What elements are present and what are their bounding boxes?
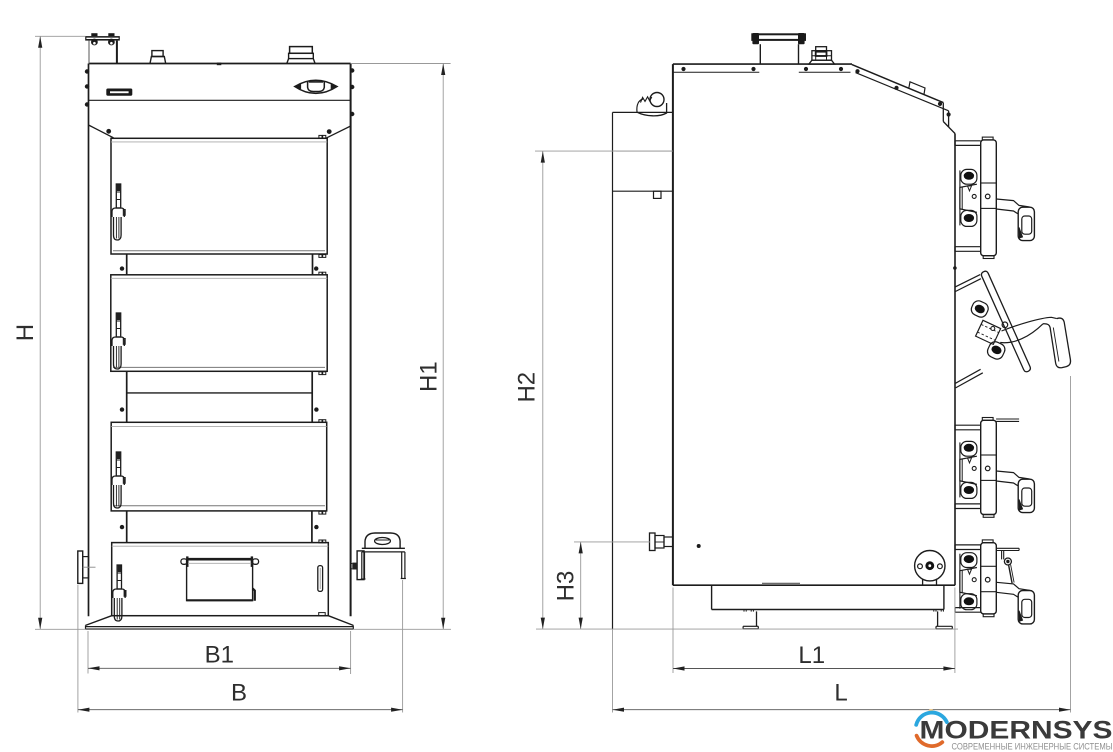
svg-text:B1: B1 <box>205 641 234 668</box>
svg-text:L1: L1 <box>798 642 825 669</box>
svg-text:H1: H1 <box>416 361 443 392</box>
svg-text:L: L <box>834 680 847 707</box>
svg-text:H3: H3 <box>553 571 580 602</box>
svg-text:H: H <box>12 324 39 341</box>
svg-text:H2: H2 <box>514 372 541 403</box>
svg-text:B: B <box>231 680 247 707</box>
svg-text:СОВРЕМЕННЫЕ ИНЖЕНЕРНЫЕ СИСТЕМЫ: СОВРЕМЕННЫЕ ИНЖЕНЕРНЫЕ СИСТЕМЫ <box>952 741 1113 751</box>
